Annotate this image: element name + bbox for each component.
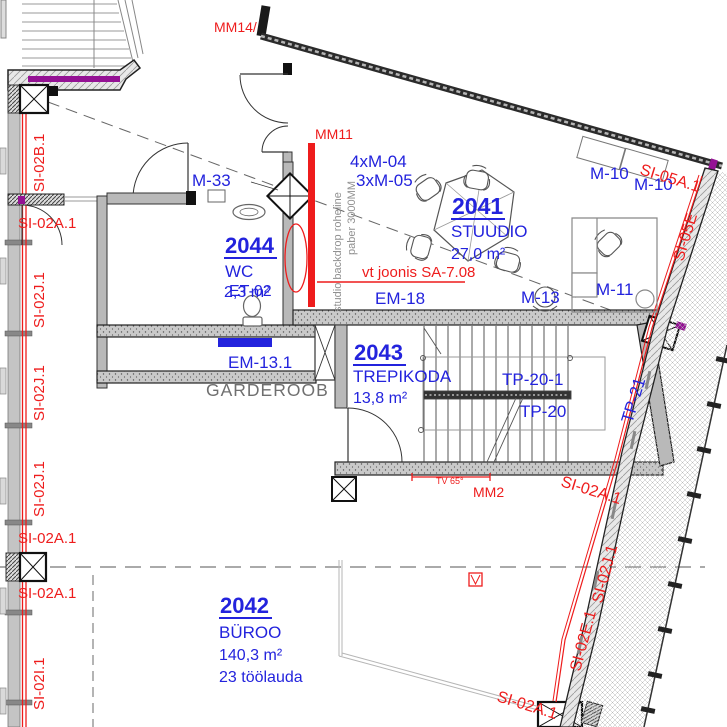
label-m13: M-13 — [521, 288, 560, 307]
note-backdrop-line1: studio backdrop roheline — [332, 192, 344, 312]
room-area-2042: 140,3 m² — [219, 647, 283, 664]
column-mid-left — [6, 553, 46, 581]
label-m10-left: M-10 — [590, 164, 629, 183]
room-name-2044: WC — [225, 262, 253, 281]
room-number-2043: 2043 — [354, 340, 403, 365]
backdrop-symbol — [308, 143, 315, 307]
label-m33: M-33 — [192, 171, 231, 190]
floor-plan: M-33 4xM-04 3xM-05 2041 STUUDIO 27,0 m² … — [0, 0, 727, 727]
column-below-stairs — [332, 477, 356, 501]
hatch-symbol — [469, 573, 482, 586]
label-drawing-ref: vt joonis SA-7.08 — [362, 264, 475, 281]
label-tp20-1: TP-20-1 — [502, 370, 563, 389]
fire-line-left — [23, 90, 27, 727]
label-mm14: MM14/ — [214, 19, 257, 35]
fire-mark-si02a1-left1: SI-02A.1 — [18, 215, 76, 232]
fire-mark-si02a1-stair: SI-02A.1 — [559, 474, 624, 508]
fire-mark-si02i1: SI-02I.1 — [31, 657, 48, 710]
room-area-2043: 13,8 m² — [353, 390, 408, 407]
fire-mark-si02j1-a: SI-02J.1 — [31, 272, 48, 328]
fire-mark-si02a1-bottom: SI-02A.1 — [495, 689, 560, 723]
room-name-2043: TREPIKODA — [353, 367, 452, 386]
facade-panels — [0, 148, 6, 714]
entry-double-door — [240, 63, 292, 166]
label-m05-qty: 3xM-05 — [356, 171, 413, 190]
label-mm2: MM2 — [473, 484, 504, 500]
fire-mark-si02j1-b: SI-02J.1 — [31, 365, 48, 421]
room-name-2042: BÜROO — [219, 623, 281, 642]
door-arc — [348, 408, 402, 462]
exterior-deck — [1, 0, 143, 68]
fire-mark-si02b1: SI-02B.1 — [31, 134, 48, 192]
column-top-left — [8, 85, 48, 113]
stair-treads — [419, 326, 606, 462]
label-tv65: TV 65° — [436, 476, 464, 486]
room-desks-2042: 23 töölauda — [219, 669, 303, 686]
room-number-2041: 2041 — [452, 193, 503, 219]
label-garderoob: GARDEROOB — [206, 380, 329, 400]
column-symbol — [267, 173, 312, 218]
label-m11: M-11 — [596, 280, 633, 299]
label-em13-1: EM-13.1 — [228, 353, 292, 372]
room-name-2041: STUUDIO — [451, 222, 528, 241]
floor-plan-svg: M-33 4xM-04 3xM-05 2041 STUUDIO 27,0 m² … — [0, 0, 727, 727]
room-area-2041: 27,0 m² — [451, 246, 506, 263]
fire-mark-si02a1-left3: SI-02A.1 — [18, 585, 76, 602]
chair — [590, 225, 625, 260]
room-number-2042: 2042 — [220, 593, 269, 618]
top-slanted-wall — [261, 6, 722, 174]
fire-mark-si02a1-left2: SI-02A.1 — [18, 530, 76, 547]
fire-strip-magenta — [28, 76, 120, 82]
label-tp20: TP-20 — [520, 402, 566, 421]
fire-mark-si02j1-c: SI-02J.1 — [31, 461, 48, 517]
label-m04-qty: 4xM-04 — [350, 152, 407, 171]
note-backdrop-line2: paber 3000MM — [346, 181, 358, 255]
room-number-2044: 2044 — [225, 233, 275, 258]
left-exterior-wall — [0, 90, 32, 727]
office-partitions — [339, 560, 540, 710]
label-mm11: MM11 — [315, 126, 353, 142]
toilet-tank — [243, 317, 262, 326]
em-cabinet-symbol — [218, 338, 272, 347]
chair — [409, 170, 444, 204]
chair — [463, 163, 492, 191]
label-em18: EM-18 — [375, 289, 425, 308]
label-et02: ET-02 — [229, 283, 272, 300]
